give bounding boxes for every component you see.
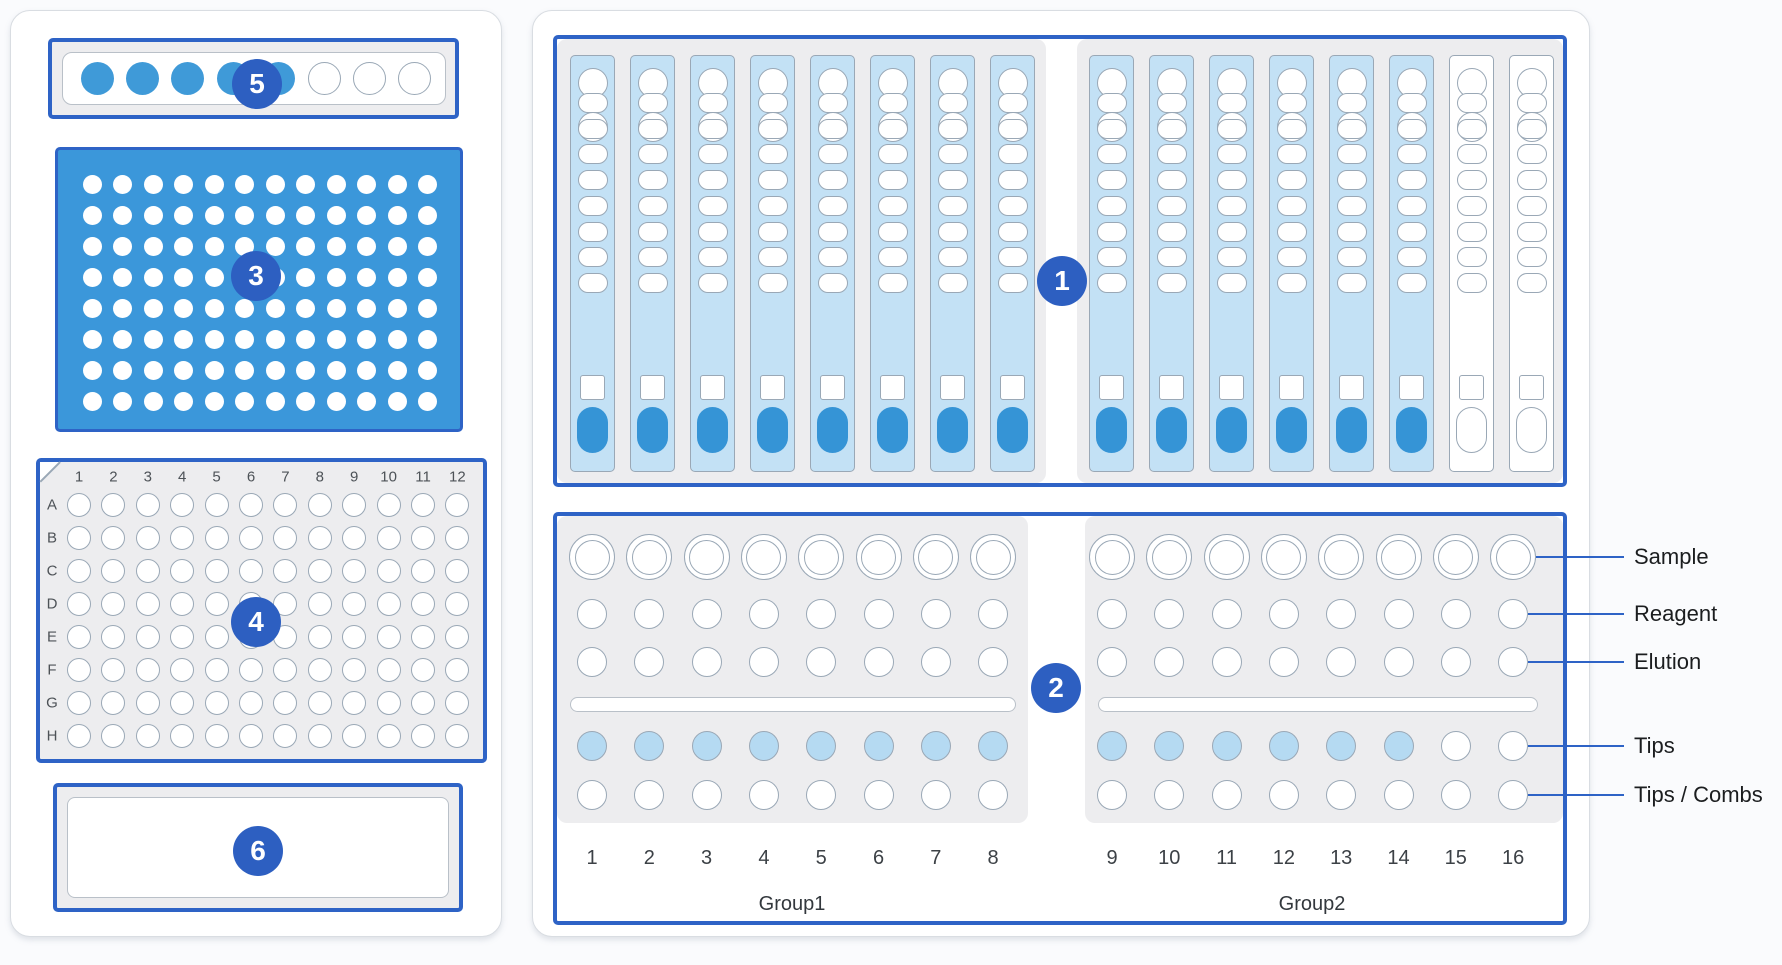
strip-well-oval xyxy=(1517,93,1547,113)
strip-well-square xyxy=(1219,375,1244,400)
strip-well-square xyxy=(580,375,605,400)
strip-well-oval xyxy=(578,144,608,164)
plate-dot xyxy=(296,237,315,256)
tip-well xyxy=(749,731,779,761)
strip-well-pill xyxy=(817,407,848,453)
strip-well-oval xyxy=(1337,170,1367,190)
plate-dot xyxy=(388,330,407,349)
reagent-well xyxy=(1212,599,1242,629)
plate-dot xyxy=(174,392,193,411)
elution-well xyxy=(921,647,951,677)
reagent-well xyxy=(1269,599,1299,629)
strip-well-oval xyxy=(1337,273,1367,293)
strip-well-oval xyxy=(1397,119,1427,139)
plate-dot xyxy=(174,237,193,256)
comb-well xyxy=(1498,780,1528,810)
group-label: Group1 xyxy=(759,894,826,914)
strip-well-pill xyxy=(1156,407,1187,453)
strip-well-oval xyxy=(1457,222,1487,242)
strip-well-oval xyxy=(1097,222,1127,242)
strip-well-square xyxy=(880,375,905,400)
plate-dot xyxy=(174,361,193,380)
plate-well xyxy=(342,625,366,649)
strip-well-oval xyxy=(878,222,908,242)
strip-well-oval xyxy=(1157,196,1187,216)
plate-well xyxy=(205,724,229,748)
strip-well-oval xyxy=(1397,222,1427,242)
plate-dot xyxy=(205,392,224,411)
strip-well-oval xyxy=(878,247,908,267)
strip-well-oval xyxy=(818,273,848,293)
plate-dot xyxy=(174,206,193,225)
strip-well-oval xyxy=(878,273,908,293)
strip-well-pill xyxy=(637,407,668,453)
plate-row-label: C xyxy=(47,564,58,579)
strip-well-oval xyxy=(998,93,1028,113)
plate-row-label: E xyxy=(47,630,57,645)
comb-well xyxy=(1441,780,1471,810)
strip-well-oval xyxy=(1277,222,1307,242)
plate-dot xyxy=(327,268,346,287)
strip-well-oval xyxy=(698,247,728,267)
comb-well xyxy=(864,780,894,810)
reagent-well xyxy=(749,599,779,629)
strip-well-oval xyxy=(638,222,668,242)
plate-dot xyxy=(266,206,285,225)
strip-well-oval xyxy=(1397,170,1427,190)
comb-well xyxy=(978,780,1008,810)
strip-well-oval xyxy=(878,144,908,164)
plate-well xyxy=(411,592,435,616)
plate-dot xyxy=(418,330,437,349)
strip-well-oval xyxy=(1337,222,1367,242)
plate-dot xyxy=(418,361,437,380)
plate-dot xyxy=(296,206,315,225)
strip-well-pill xyxy=(937,407,968,453)
comb-well xyxy=(921,780,951,810)
reagent-well xyxy=(577,599,607,629)
strip-well-oval xyxy=(758,93,788,113)
callout-badge-1: 1 xyxy=(1037,256,1087,306)
plate-well xyxy=(342,526,366,550)
tip-well xyxy=(692,731,722,761)
plate-well xyxy=(205,526,229,550)
plate-dot xyxy=(296,392,315,411)
strip-well-oval xyxy=(1157,144,1187,164)
plate-dot xyxy=(83,392,102,411)
plate-well xyxy=(136,526,160,550)
column-number: 11 xyxy=(1216,848,1237,868)
strip-well-oval xyxy=(758,196,788,216)
plate-well xyxy=(377,493,401,517)
strip-well-oval xyxy=(1397,247,1427,267)
plate-dot xyxy=(205,237,224,256)
strip-well-oval xyxy=(998,222,1028,242)
plate-well xyxy=(170,592,194,616)
strip-well-oval xyxy=(998,170,1028,190)
plate-well xyxy=(170,625,194,649)
elution-well xyxy=(1212,647,1242,677)
strip-well-oval xyxy=(998,247,1028,267)
strip-well-pill xyxy=(877,407,908,453)
strip-well-oval xyxy=(1457,144,1487,164)
plate-dot xyxy=(83,237,102,256)
plate-well xyxy=(205,625,229,649)
strip-well-pill xyxy=(997,407,1028,453)
strip-well-square xyxy=(760,375,785,400)
plate-row-label: A xyxy=(47,498,57,513)
sample-well-inner-ring xyxy=(1381,540,1416,575)
plate-dot xyxy=(388,299,407,318)
plate-well xyxy=(377,691,401,715)
plate-row-label: F xyxy=(47,663,56,678)
column-number: 9 xyxy=(1106,848,1117,868)
reagent-well xyxy=(1498,599,1528,629)
comb-well xyxy=(1326,780,1356,810)
legend-item: Tips xyxy=(1634,735,1675,757)
deck-slot-bar xyxy=(1098,697,1538,712)
strip-well-oval xyxy=(1517,196,1547,216)
strip-well-pill xyxy=(1456,407,1487,453)
plate-dot xyxy=(83,206,102,225)
strip-well-oval xyxy=(578,196,608,216)
strip-well-oval xyxy=(1097,247,1127,267)
plate-well xyxy=(67,592,91,616)
plate-dot xyxy=(205,299,224,318)
plate-dot xyxy=(266,392,285,411)
elution-well xyxy=(1384,647,1414,677)
strip-well-oval xyxy=(1397,273,1427,293)
strip-well-pill xyxy=(1276,407,1307,453)
plate-dot xyxy=(388,237,407,256)
strip-well-oval xyxy=(998,144,1028,164)
plate-dot xyxy=(174,175,193,194)
plate-dot xyxy=(418,237,437,256)
plate-dot xyxy=(418,268,437,287)
legend-item: Tips / Combs xyxy=(1634,784,1763,806)
strip-well-oval xyxy=(1337,247,1367,267)
strip-well-oval xyxy=(1337,196,1367,216)
plate-dot xyxy=(83,268,102,287)
strip-well-square xyxy=(1159,375,1184,400)
plate-row-label: D xyxy=(47,597,58,612)
plate-col-label: 6 xyxy=(247,470,255,485)
plate-col-label: 12 xyxy=(449,470,466,485)
elution-well xyxy=(749,647,779,677)
plate-col-label: 1 xyxy=(75,470,83,485)
plate-dot xyxy=(388,206,407,225)
comb-well xyxy=(1384,780,1414,810)
plate-well xyxy=(136,691,160,715)
plate-dot xyxy=(235,330,254,349)
plate-col-label: 9 xyxy=(350,470,358,485)
strip-well-oval xyxy=(638,144,668,164)
strip-well-oval xyxy=(878,93,908,113)
strip-well-square xyxy=(640,375,665,400)
column-number: 8 xyxy=(988,848,999,868)
strip-well-oval xyxy=(578,222,608,242)
legend-item: Sample xyxy=(1634,546,1709,568)
plate-well xyxy=(67,493,91,517)
strip-well-oval xyxy=(1217,93,1247,113)
plate-well xyxy=(67,658,91,682)
comb-well xyxy=(1269,780,1299,810)
plate-well xyxy=(342,592,366,616)
strip-well-pill xyxy=(577,407,608,453)
plate-dot xyxy=(205,175,224,194)
tip-well xyxy=(978,731,1008,761)
plate-dot xyxy=(327,299,346,318)
plate-well xyxy=(308,658,332,682)
strip-well-oval xyxy=(1277,196,1307,216)
strip-well-oval xyxy=(1517,119,1547,139)
plate-dot xyxy=(266,330,285,349)
strip-well-oval xyxy=(818,93,848,113)
tip-well xyxy=(1326,731,1356,761)
plate-well xyxy=(170,724,194,748)
plate-well xyxy=(239,493,263,517)
strip-well-pill xyxy=(1216,407,1247,453)
strip-well-oval xyxy=(818,247,848,267)
deck-layout-diagram: 53123456789101112ABCDEFGH46112345678Grou… xyxy=(0,0,1782,965)
strip-well-square xyxy=(1339,375,1364,400)
plate-dot xyxy=(83,361,102,380)
plate-dot xyxy=(327,206,346,225)
plate-dot xyxy=(205,268,224,287)
strip-well-oval xyxy=(698,93,728,113)
plate-well xyxy=(136,724,160,748)
comb-well xyxy=(577,780,607,810)
strip-well-oval xyxy=(1457,247,1487,267)
plate-row-label: B xyxy=(47,531,57,546)
legend-line xyxy=(1528,745,1624,747)
tip-well xyxy=(1498,731,1528,761)
strip-well-oval xyxy=(1097,170,1127,190)
deck-slot-bar xyxy=(570,697,1016,712)
strip-well-oval xyxy=(1457,273,1487,293)
strip-well-oval xyxy=(1097,119,1127,139)
strip-well-oval xyxy=(1157,119,1187,139)
callout-badge-3: 3 xyxy=(231,251,281,301)
strip-well-oval xyxy=(578,93,608,113)
legend-line xyxy=(1528,661,1624,663)
strip-well-oval xyxy=(638,119,668,139)
strip-well-pill xyxy=(757,407,788,453)
strip-well-oval xyxy=(1337,93,1367,113)
legend-item: Elution xyxy=(1634,651,1701,673)
column-number: 16 xyxy=(1502,848,1524,868)
sample-well-inner-ring xyxy=(1266,540,1301,575)
plate-dot xyxy=(113,206,132,225)
sample-well-inner-ring xyxy=(861,540,896,575)
plate-dot xyxy=(144,237,163,256)
column-number: 1 xyxy=(586,848,597,868)
elution-well xyxy=(1326,647,1356,677)
strip-well-oval xyxy=(1277,119,1307,139)
plate-col-label: 3 xyxy=(144,470,152,485)
strip-well-oval xyxy=(938,247,968,267)
plate-dot xyxy=(113,268,132,287)
plate-well xyxy=(308,724,332,748)
strip-well-oval xyxy=(938,170,968,190)
strip-well-oval xyxy=(1097,144,1127,164)
strip-well-oval xyxy=(818,196,848,216)
strip-well-oval xyxy=(578,170,608,190)
column-number: 6 xyxy=(873,848,884,868)
plate-dot xyxy=(296,175,315,194)
strip-well-oval xyxy=(1217,119,1247,139)
strip-well-oval xyxy=(638,170,668,190)
plate-well xyxy=(136,658,160,682)
plate-dot xyxy=(266,299,285,318)
strip-well-oval xyxy=(1457,170,1487,190)
strip-well-oval xyxy=(1217,144,1247,164)
strip-well-square xyxy=(820,375,845,400)
plate-well xyxy=(205,592,229,616)
plate-well xyxy=(342,493,366,517)
reagent-well xyxy=(921,599,951,629)
column-number: 13 xyxy=(1330,848,1352,868)
strip-well-oval xyxy=(1277,247,1307,267)
plate-dot xyxy=(144,299,163,318)
legend-line xyxy=(1528,794,1624,796)
strip-well-pill xyxy=(1096,407,1127,453)
strip-well-oval xyxy=(1337,144,1367,164)
strip-well-oval xyxy=(878,119,908,139)
comb-well xyxy=(1212,780,1242,810)
plate-well xyxy=(308,592,332,616)
plate-dot xyxy=(235,392,254,411)
reagent-well xyxy=(1097,599,1127,629)
strip8-slot xyxy=(81,62,114,95)
reagent-well xyxy=(692,599,722,629)
strip-well-oval xyxy=(1277,273,1307,293)
plate-col-label: 4 xyxy=(178,470,186,485)
plate-dot xyxy=(83,175,102,194)
plate-dot xyxy=(113,361,132,380)
plate-dot xyxy=(83,299,102,318)
sample-well-inner-ring xyxy=(1324,540,1359,575)
column-number: 15 xyxy=(1445,848,1467,868)
plate-dot xyxy=(296,361,315,380)
plate-dot xyxy=(327,361,346,380)
strip-well-pill xyxy=(1516,407,1547,453)
strip-well-oval xyxy=(638,247,668,267)
strip-well-square xyxy=(1399,375,1424,400)
plate-dot xyxy=(418,392,437,411)
plate-row-label: G xyxy=(46,696,58,711)
strip-well-oval xyxy=(698,273,728,293)
strip-well-oval xyxy=(1397,196,1427,216)
plate-dot xyxy=(418,175,437,194)
plate-dot xyxy=(357,268,376,287)
strip-well-oval xyxy=(1097,196,1127,216)
plate-dot xyxy=(357,206,376,225)
column-number: 4 xyxy=(758,848,769,868)
plate-dot xyxy=(388,392,407,411)
strip-well-oval xyxy=(758,222,788,242)
plate-dot xyxy=(113,330,132,349)
sample-well-inner-ring xyxy=(689,540,724,575)
reagent-well xyxy=(864,599,894,629)
plate-well xyxy=(170,559,194,583)
strip-well-oval xyxy=(818,119,848,139)
elution-well xyxy=(1498,647,1528,677)
plate-well xyxy=(67,625,91,649)
strip-well-oval xyxy=(1217,196,1247,216)
reagent-well xyxy=(978,599,1008,629)
strip-well-oval xyxy=(1457,196,1487,216)
plate-well xyxy=(170,526,194,550)
plate-well xyxy=(67,724,91,748)
strip-well-oval xyxy=(1337,119,1367,139)
strip-well-oval xyxy=(638,93,668,113)
plate-well xyxy=(239,526,263,550)
plate-dot xyxy=(357,330,376,349)
tip-well xyxy=(1269,731,1299,761)
plate-well xyxy=(342,658,366,682)
tip-well xyxy=(1212,731,1242,761)
group-label: Group2 xyxy=(1279,894,1346,914)
plate-col-label: 11 xyxy=(415,470,431,485)
strip-well-pill xyxy=(1336,407,1367,453)
plate-well xyxy=(205,559,229,583)
plate-dot xyxy=(296,330,315,349)
elution-well xyxy=(806,647,836,677)
strip-well-oval xyxy=(758,273,788,293)
plate-dot xyxy=(388,361,407,380)
strip-well-pill xyxy=(1396,407,1427,453)
legend-line xyxy=(1536,556,1624,558)
plate-dot xyxy=(174,299,193,318)
column-number: 14 xyxy=(1387,848,1409,868)
strip-well-oval xyxy=(938,273,968,293)
strip-well-oval xyxy=(818,222,848,242)
column-number: 3 xyxy=(701,848,712,868)
plate-row-label: H xyxy=(47,729,58,744)
plate-well xyxy=(308,625,332,649)
strip-well-square xyxy=(1099,375,1124,400)
plate-well xyxy=(308,526,332,550)
strip-well-oval xyxy=(1277,170,1307,190)
plate-well xyxy=(411,559,435,583)
strip-well-oval xyxy=(698,196,728,216)
strip-well-pill xyxy=(697,407,728,453)
strip-well-oval xyxy=(578,119,608,139)
plate-dot xyxy=(113,175,132,194)
strip-well-oval xyxy=(1517,273,1547,293)
reagent-well xyxy=(1441,599,1471,629)
strip8-slot xyxy=(308,62,341,95)
strip-well-oval xyxy=(1157,273,1187,293)
plate-dot xyxy=(266,237,285,256)
strip-well-oval xyxy=(1217,247,1247,267)
plate-dot xyxy=(357,175,376,194)
column-number: 12 xyxy=(1273,848,1295,868)
plate-well xyxy=(342,691,366,715)
strip-well-oval xyxy=(878,196,908,216)
plate-well xyxy=(377,526,401,550)
strip-well-oval xyxy=(1517,170,1547,190)
plate-dot xyxy=(113,392,132,411)
plate-dot xyxy=(388,268,407,287)
strip-well-oval xyxy=(818,144,848,164)
plate-well xyxy=(308,559,332,583)
plate-well xyxy=(377,658,401,682)
elution-well xyxy=(1097,647,1127,677)
plate-well xyxy=(67,526,91,550)
plate-dot xyxy=(144,206,163,225)
